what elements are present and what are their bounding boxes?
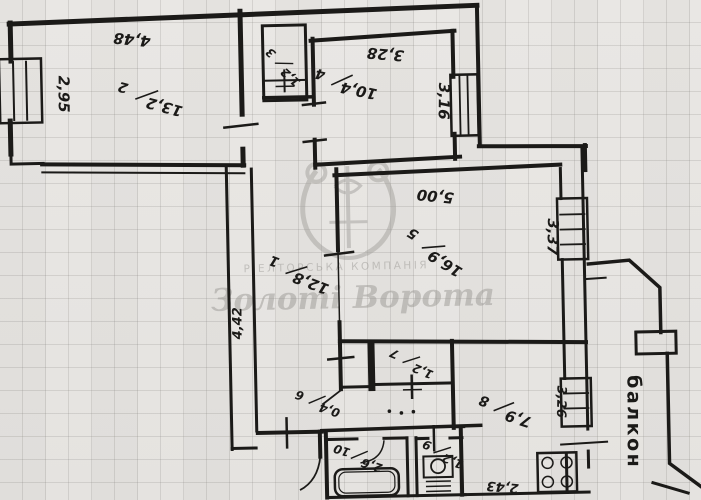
doorway-dots [388, 409, 416, 415]
room-8-label: 8 7,9 [475, 391, 536, 431]
wall-tick [585, 278, 607, 279]
room-number: 5 [405, 224, 422, 243]
room-number: 7 [387, 345, 401, 361]
entry-door-swing [299, 457, 321, 490]
room-area: 1,2 [410, 361, 435, 382]
window-room2-left [0, 58, 42, 123]
room-number: 8 [477, 391, 491, 409]
floor-plan-drawing: РІЕЛТОРСЬКА КОМПАНІЯ Золоті Ворота [0, 0, 701, 500]
room-3-label: 3 1,2 [260, 45, 307, 90]
entry-door-tick [287, 418, 288, 447]
floor-plan-scan: РІЕЛТОРСЬКА КОМПАНІЯ Золоті Ворота [0, 0, 701, 500]
room-4-label: 4 10,4 [312, 65, 380, 104]
dim-kitchen-right: 3,26 [553, 386, 568, 418]
room-number: 6 [294, 387, 306, 403]
dim-room2-top: 4,48 [113, 29, 153, 51]
room-area: 0,4 [317, 400, 342, 420]
room-4-door-ticks [303, 102, 326, 141]
closet-6-tick [328, 357, 353, 360]
wc-door-tick [434, 426, 435, 450]
room-area: 16,9 [425, 246, 466, 281]
room-area: 7,9 [503, 406, 534, 431]
room-number: 3 [263, 45, 279, 61]
closet-6-walls [321, 344, 372, 405]
room-number: 4 [314, 65, 328, 83]
balcony-door-threshold [560, 442, 608, 445]
room-2-door-tick [224, 124, 257, 128]
room-number: 2 [116, 78, 130, 96]
dim-room4-top: 3,28 [366, 44, 404, 65]
room-2-label: 2 13,2 [114, 78, 187, 121]
dim-kitchen-bottom: 2,43 [486, 478, 519, 496]
balcony-label: балкон [623, 375, 645, 469]
bathtub-icon [335, 468, 400, 496]
room-6-label: 6 0,4 [292, 387, 343, 420]
dim-room5-right: 3,37 [544, 218, 563, 256]
balcony-pillar [636, 331, 676, 354]
dim-room2-left: 2,95 [55, 76, 73, 113]
hall-walls [226, 160, 482, 491]
room-number: 10 [332, 441, 352, 459]
dim-room5-top: 5,00 [416, 185, 455, 207]
room-area: 10,4 [339, 78, 379, 103]
outer-wall-top-right [476, 3, 586, 172]
closet-7-walls [376, 375, 453, 399]
room-2-walls [8, 5, 480, 178]
room-5-label: 5 16,9 [399, 224, 469, 281]
stove-icon [537, 452, 577, 492]
dim-hall-left: 4,42 [230, 307, 245, 340]
window-room4-right [450, 74, 478, 136]
room-area: 13,2 [144, 93, 184, 120]
dim-room4-right: 3,16 [435, 83, 454, 120]
